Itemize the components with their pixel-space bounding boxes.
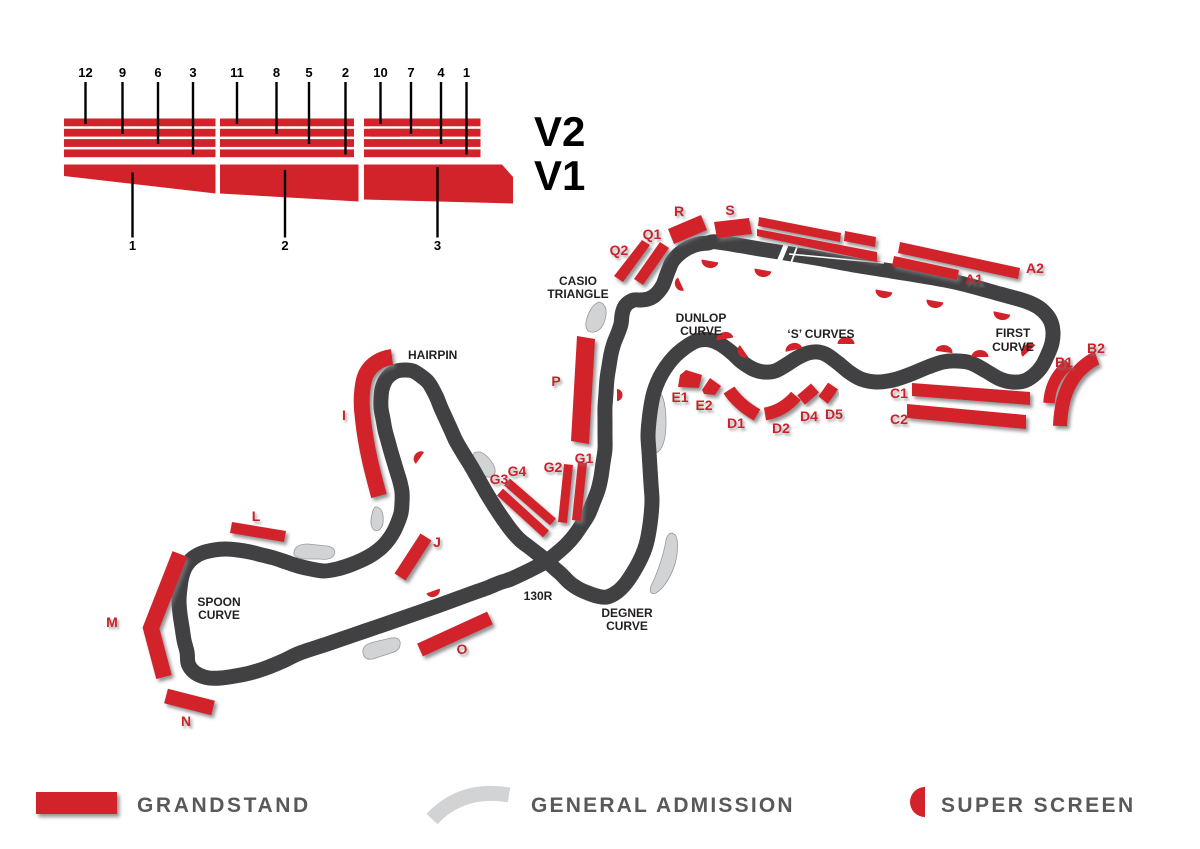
- svg-text:1: 1: [129, 238, 136, 253]
- svg-text:A1: A1: [965, 271, 983, 287]
- svg-text:G3: G3: [490, 471, 509, 487]
- svg-text:N: N: [181, 713, 191, 729]
- svg-text:‘S’ CURVES: ‘S’ CURVES: [787, 327, 854, 341]
- svg-text:I: I: [342, 407, 346, 423]
- svg-text:4: 4: [437, 65, 445, 80]
- svg-text:O: O: [457, 641, 468, 657]
- svg-text:3: 3: [189, 65, 196, 80]
- svg-text:J: J: [433, 534, 441, 550]
- svg-text:R: R: [674, 203, 684, 219]
- svg-text:5: 5: [305, 65, 312, 80]
- svg-text:V2: V2: [534, 108, 585, 155]
- svg-text:GRANDSTAND: GRANDSTAND: [137, 794, 311, 817]
- svg-text:7: 7: [407, 65, 414, 80]
- svg-text:6: 6: [154, 65, 161, 80]
- svg-text:HAIRPIN: HAIRPIN: [408, 348, 457, 362]
- svg-text:CURVE: CURVE: [680, 324, 722, 338]
- svg-text:B2: B2: [1087, 340, 1105, 356]
- svg-text:Q2: Q2: [610, 242, 629, 258]
- svg-text:V1: V1: [534, 152, 585, 199]
- svg-text:M: M: [106, 614, 118, 630]
- svg-text:D2: D2: [772, 420, 790, 436]
- svg-text:11: 11: [230, 65, 244, 80]
- svg-text:G1: G1: [575, 450, 594, 466]
- svg-text:TRIANGLE: TRIANGLE: [547, 287, 608, 301]
- svg-text:1: 1: [463, 65, 470, 80]
- svg-text:12: 12: [78, 65, 92, 80]
- svg-text:E1: E1: [671, 389, 688, 405]
- svg-text:8: 8: [273, 65, 280, 80]
- svg-text:CASIO: CASIO: [559, 274, 597, 288]
- svg-text:A2: A2: [1026, 260, 1044, 276]
- svg-text:CURVE: CURVE: [198, 608, 240, 622]
- svg-text:G4: G4: [508, 463, 527, 479]
- svg-text:CURVE: CURVE: [992, 340, 1034, 354]
- svg-text:GENERAL ADMISSION: GENERAL ADMISSION: [531, 794, 795, 817]
- svg-text:FIRST: FIRST: [996, 326, 1031, 340]
- svg-text:B1: B1: [1055, 354, 1073, 370]
- svg-text:C2: C2: [890, 411, 908, 427]
- svg-text:3: 3: [434, 238, 441, 253]
- svg-text:9: 9: [119, 65, 126, 80]
- svg-text:CURVE: CURVE: [606, 619, 648, 633]
- svg-text:SPOON: SPOON: [197, 595, 240, 609]
- svg-text:DUNLOP: DUNLOP: [676, 311, 727, 325]
- svg-text:L: L: [252, 508, 261, 524]
- svg-text:D4: D4: [800, 408, 818, 424]
- svg-text:2: 2: [281, 238, 288, 253]
- svg-text:S: S: [725, 202, 734, 218]
- svg-text:P: P: [551, 373, 560, 389]
- svg-text:2: 2: [342, 65, 349, 80]
- svg-text:D1: D1: [727, 415, 745, 431]
- svg-text:D5: D5: [825, 406, 843, 422]
- svg-text:SUPER SCREEN: SUPER SCREEN: [941, 794, 1136, 817]
- svg-text:E2: E2: [695, 397, 712, 413]
- svg-text:130R: 130R: [524, 589, 553, 603]
- svg-text:G2: G2: [544, 459, 563, 475]
- svg-text:C1: C1: [890, 385, 908, 401]
- svg-text:DEGNER: DEGNER: [601, 606, 653, 620]
- svg-text:Q1: Q1: [643, 226, 662, 242]
- svg-text:10: 10: [373, 65, 387, 80]
